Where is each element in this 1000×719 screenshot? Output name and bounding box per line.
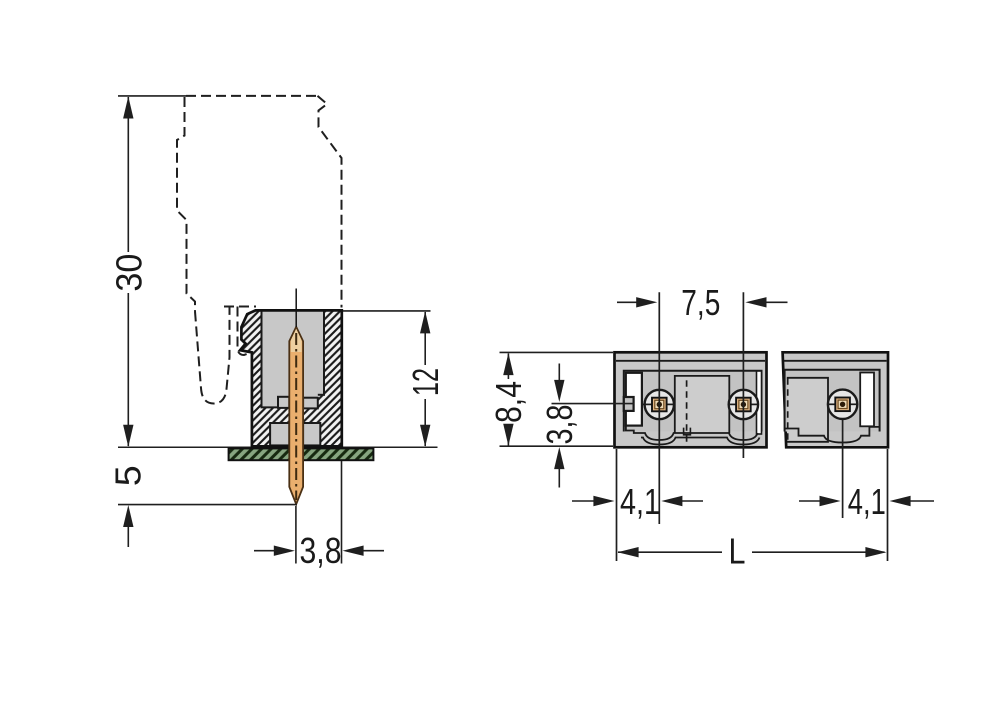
svg-text:3,8: 3,8 xyxy=(300,530,342,571)
svg-text:4,1: 4,1 xyxy=(848,481,886,522)
svg-text:12: 12 xyxy=(405,368,446,396)
svg-text:8,4: 8,4 xyxy=(488,381,529,423)
svg-text:30: 30 xyxy=(108,254,149,292)
svg-text:4,1: 4,1 xyxy=(620,481,660,522)
svg-text:L: L xyxy=(729,530,746,571)
svg-text:7,5: 7,5 xyxy=(681,282,720,323)
svg-text:3,8: 3,8 xyxy=(539,405,580,445)
svg-text:5: 5 xyxy=(108,465,149,486)
